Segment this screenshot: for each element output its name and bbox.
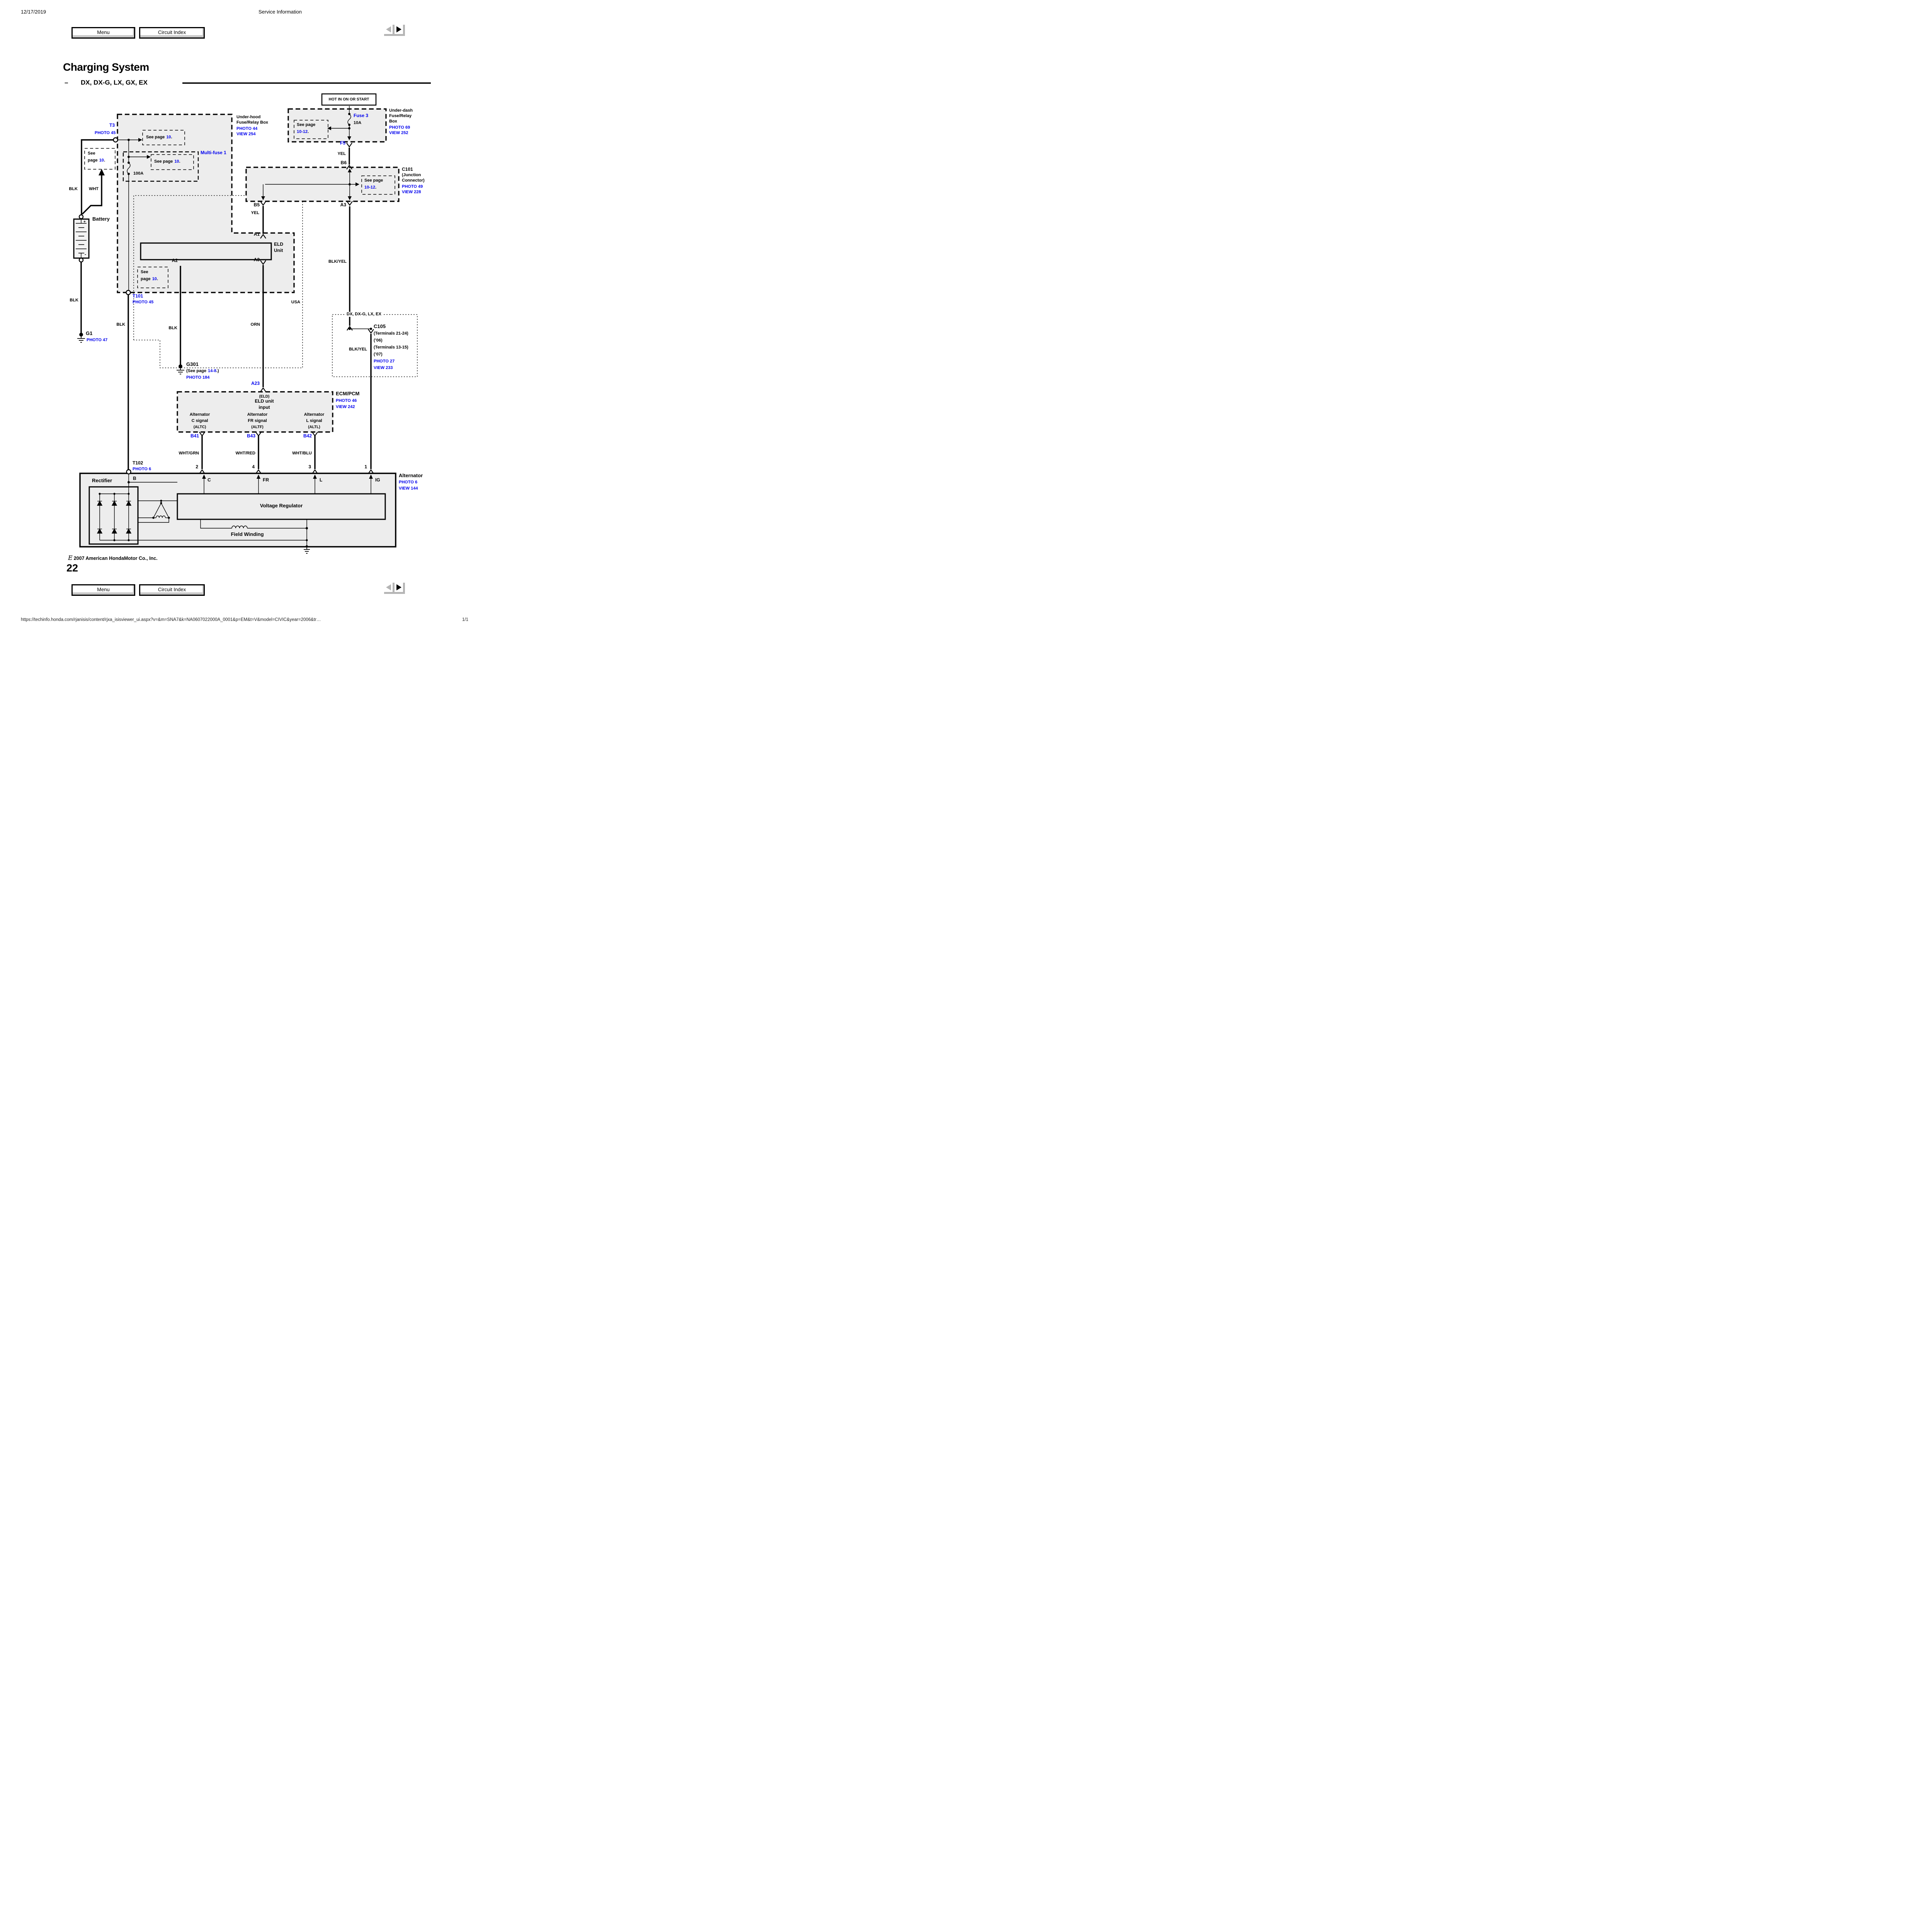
- fuse3-amp-label: 10A: [354, 121, 361, 126]
- underdash-label-3: Box: [389, 119, 397, 124]
- battery-symbol: [74, 219, 89, 258]
- see-page-mf-num: 10: [174, 159, 179, 164]
- see-page-c101-dot: .: [375, 185, 376, 190]
- see-page-c101-num: 10-12: [364, 185, 375, 190]
- alt-b-terminal-label: B: [133, 476, 136, 481]
- f5-label: F5: [340, 141, 345, 146]
- altl-label-2: L signal: [306, 418, 322, 423]
- multifuse-amp-label: 100A: [133, 171, 143, 176]
- t102-label: T102: [133, 461, 143, 466]
- ground-g301: [177, 365, 184, 374]
- see-page-underdash-num: 10-12: [297, 129, 308, 134]
- a3-c101-label: A3: [340, 202, 346, 207]
- menu-button-bottom-label: Menu: [97, 587, 110, 592]
- eld-unit-box: [141, 243, 271, 260]
- voltage-regulator-label: Voltage Regulator: [260, 503, 303, 508]
- g301-see-page: (See page14-8.): [186, 369, 219, 374]
- copyright-line: E2007 American HondaMotor Co., Inc.: [68, 554, 158, 561]
- c101-photo-ref: PHOTO 49: [402, 184, 423, 189]
- connector-a23: [260, 388, 266, 392]
- c101-label-3: Connector): [402, 178, 425, 183]
- ecm-input-label: input: [259, 405, 270, 410]
- underdash-view-ref: VIEW 252: [389, 131, 408, 136]
- alt-terminal-3: 3: [308, 464, 311, 469]
- alt-fr-terminal-label: FR: [263, 478, 269, 483]
- g1-label: G1: [86, 331, 92, 336]
- see-page-mf-text: See page: [154, 159, 173, 164]
- service-information-page: 12/17/2019 Service Information Menu Circ…: [0, 0, 493, 638]
- alt-terminal-1: 1: [364, 464, 367, 469]
- underhood-view-ref: VIEW 254: [236, 132, 256, 137]
- connector-b43: [256, 432, 261, 436]
- blkyel-wire-label-2: BLK/YEL: [349, 347, 367, 352]
- see-page-left-line1: See: [88, 151, 95, 156]
- c101-label: C101: [402, 167, 413, 172]
- ecm-photo-ref: PHOTO 46: [336, 398, 357, 403]
- prev-page-button-bottom[interactable]: [384, 583, 395, 594]
- see-page-underdash-line1: See page: [297, 122, 315, 128]
- blk-wire-label-t101: BLK: [116, 322, 125, 327]
- alt-terminal-4: 4: [252, 464, 255, 469]
- g301-see-suffix: .): [216, 369, 219, 373]
- circuit-index-bottom-label: Circuit Index: [158, 587, 186, 592]
- blk-wire-label-g301: BLK: [168, 326, 177, 331]
- ground-g1: [77, 333, 85, 342]
- see-page-underdash-line2: 10-12.: [297, 129, 309, 134]
- g1-photo-ref: PHOTO 47: [87, 338, 107, 343]
- t3-label: T3: [109, 123, 115, 128]
- see-page-a2-line2: page10.: [141, 277, 158, 282]
- whtred-wire-label: WHT/RED: [236, 451, 255, 456]
- blk-wire-label-g1: BLK: [70, 298, 78, 303]
- underhood-label-1: Under-hood: [236, 115, 260, 120]
- next-arrow-icon-bottom: [396, 584, 401, 590]
- g301-see-num: 14-8: [208, 369, 216, 373]
- terminal-t102: [127, 470, 131, 474]
- altc-label-3: (ALTC): [194, 425, 206, 430]
- ecm-eld-unit-label: ELD unit: [255, 399, 274, 404]
- alt-terminal-2: 2: [196, 464, 198, 469]
- fuse3-label: Fuse 3: [354, 113, 368, 118]
- c105-terminals-2: (Terminals 13-15): [374, 345, 408, 350]
- blkyel-wire-label-1: BLK/YEL: [328, 259, 347, 264]
- a23-label: A23: [251, 381, 260, 386]
- yel-wire-label-f5: YEL: [338, 151, 346, 156]
- see-page-left-dot: .: [104, 158, 105, 163]
- copyright-text: 2007 American HondaMotor Co., Inc.: [74, 556, 158, 561]
- altf-label-3: (ALTF): [251, 425, 263, 430]
- t101-label: T101: [133, 294, 143, 299]
- altc-label-1: Alternator: [190, 412, 210, 417]
- g301-photo-ref: PHOTO 184: [186, 375, 209, 380]
- rectifier-label: Rectifier: [92, 478, 112, 483]
- terminal-t101: [126, 291, 131, 295]
- page-nav-bottom: [384, 583, 405, 594]
- underhood-fuse-relay-box: [117, 114, 294, 293]
- wiring-diagram-svg: [0, 0, 493, 638]
- terminal-t3: [114, 138, 118, 142]
- see-page-multifuse: See page10.: [154, 159, 180, 164]
- see-page-underdash-dot: .: [308, 129, 309, 134]
- page-number: 22: [66, 562, 78, 574]
- alt-l-terminal-label: L: [320, 478, 322, 483]
- see-page-c101-line2: 10-12.: [364, 185, 376, 190]
- underhood-label-2: Fuse/Relay Box: [236, 120, 268, 125]
- blk-wire-label-battery: BLK: [69, 187, 78, 192]
- b5-label: B5: [254, 202, 260, 207]
- t3-photo-ref: PHOTO 45: [95, 131, 116, 136]
- underdash-label-2: Fuse/Relay: [389, 114, 412, 119]
- terminal-battery-positive: [79, 215, 83, 219]
- usa-region-label: USA: [291, 300, 300, 305]
- c105-year-06: (’06): [374, 338, 383, 343]
- orn-wire-label: ORN: [251, 322, 260, 327]
- alternator-view-ref: VIEW 144: [399, 486, 418, 491]
- alternator-photo-ref: PHOTO 6: [399, 480, 417, 485]
- see-page-left-num: 10: [99, 158, 104, 163]
- wiring-diagram: [0, 0, 493, 638]
- c105-label: C105: [374, 324, 386, 329]
- g301-label: G301: [186, 362, 199, 367]
- underdash-label-1: Under-dash: [389, 108, 413, 113]
- battery-minus-sign: -: [85, 252, 86, 257]
- hot-banner-label: HOT IN ON OR START: [329, 97, 369, 102]
- terminal-battery-negative: [79, 258, 83, 262]
- connector-b5: [260, 201, 266, 205]
- page-indicator: 1/1: [462, 617, 468, 622]
- altl-label-3: (ALTL): [308, 425, 320, 430]
- ecm-view-ref: VIEW 242: [336, 405, 355, 410]
- b42-label: B42: [303, 434, 312, 439]
- battery-plus-sign: +: [83, 219, 86, 224]
- see-page-a2-line1: See: [141, 270, 148, 275]
- eld-unit-label-1: ELD: [274, 242, 283, 247]
- see-page-uh-dot: .: [171, 135, 172, 139]
- a3-eld-label: A3: [254, 257, 260, 262]
- see-page-left-line2: page10.: [88, 158, 105, 163]
- alt-c-terminal-label: C: [207, 478, 211, 483]
- c105-photo-ref: PHOTO 27: [374, 359, 395, 364]
- altl-label-1: Alternator: [304, 412, 325, 417]
- see-page-uh-num: 10: [166, 135, 171, 139]
- dx-region-label: DX, DX-G, LX, EX: [345, 312, 383, 317]
- a1-label: A1: [254, 232, 260, 237]
- t101-photo-ref: PHOTO 45: [133, 300, 153, 305]
- circuit-index-button-bottom[interactable]: Circuit Index: [139, 584, 205, 596]
- see-page-c101-line1: See page: [364, 178, 383, 183]
- field-winding-label: Field Winding: [231, 532, 264, 537]
- prev-arrow-icon-bottom: [386, 584, 391, 590]
- ecm-pcm-label: ECM/PCM: [336, 391, 359, 396]
- see-page-a2-text: page: [141, 277, 151, 281]
- alternator-label: Alternator: [399, 473, 423, 478]
- source-url: https://techinfo.honda.com/rjanisis/cont…: [21, 617, 321, 622]
- wht-wire-label: WHT: [89, 187, 99, 192]
- connector-f5: [347, 143, 352, 147]
- yel-wire-label-b5: YEL: [251, 211, 259, 216]
- menu-button-bottom[interactable]: Menu: [71, 584, 135, 596]
- underdash-photo-ref: PHOTO 69: [389, 125, 410, 130]
- c101-view-ref: VIEW 228: [402, 190, 421, 195]
- c101-label-2: (Junction: [402, 173, 421, 178]
- whtblu-wire-label: WHT/BLU: [292, 451, 312, 456]
- underhood-photo-ref: PHOTO 44: [236, 126, 257, 131]
- g301-see-text: (See page: [186, 369, 206, 373]
- whtgrn-wire-label: WHT/GRN: [179, 451, 199, 456]
- b41-label: B41: [190, 434, 199, 439]
- see-page-a2-dot: .: [157, 277, 158, 281]
- a2-label: A2: [172, 258, 178, 263]
- battery-label: Battery: [92, 216, 110, 221]
- altf-label-2: FR signal: [248, 418, 267, 423]
- alt-ig-terminal-label: IG: [375, 478, 380, 483]
- next-page-button-bottom[interactable]: [395, 583, 405, 594]
- t102-photo-ref: PHOTO 6: [133, 467, 151, 472]
- eld-unit-label-2: Unit: [274, 248, 283, 253]
- b6-label: B6: [341, 160, 347, 165]
- copyright-symbol: E: [68, 554, 73, 561]
- altf-label-1: Alternator: [247, 412, 268, 417]
- see-page-a2-num: 10: [152, 277, 157, 281]
- c105-terminals-1: (Terminals 21-24): [374, 331, 408, 336]
- c105-year-07: (’07): [374, 352, 383, 357]
- see-page-uh-text: See page: [146, 135, 165, 139]
- multifuse-label: Multi-fuse 1: [201, 150, 226, 155]
- see-page-left-text: page: [88, 158, 98, 163]
- b43-label: B43: [247, 434, 255, 439]
- c105-view-ref: VIEW 233: [374, 366, 393, 371]
- see-page-underhood: See page10.: [146, 135, 172, 140]
- altc-label-2: C signal: [192, 418, 208, 423]
- see-page-mf-dot: .: [179, 159, 180, 164]
